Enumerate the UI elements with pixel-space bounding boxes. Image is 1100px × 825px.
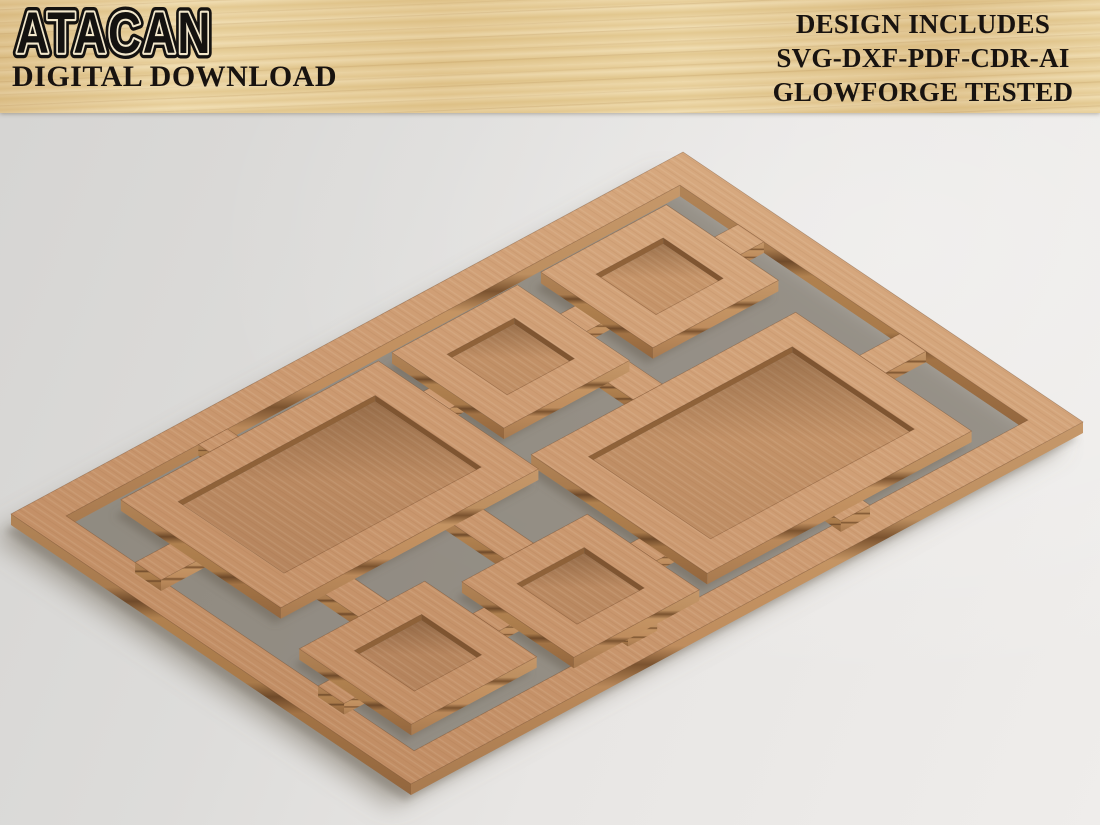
product-render — [0, 0, 1100, 825]
brand-logo: ATACAN ATACAN ATACAN — [10, 4, 310, 64]
design-info-block: DESIGN INCLUDES SVG-DXF-PDF-CDR-AI GLOWF… — [768, 7, 1078, 109]
brand-logo-text-fill: ATACAN — [16, 4, 212, 64]
info-line-file-formats: SVG-DXF-PDF-CDR-AI — [768, 41, 1078, 75]
header-banner: ATACAN ATACAN ATACAN DIGITAL DOWNLOAD DE… — [0, 0, 1100, 113]
info-line-formats-title: DESIGN INCLUDES — [768, 7, 1078, 41]
render-scene-group — [0, 152, 1083, 807]
brand-subtitle: DIGITAL DOWNLOAD — [12, 60, 337, 94]
brand-block: ATACAN ATACAN ATACAN DIGITAL DOWNLOAD — [10, 4, 337, 94]
product-listing-image: ATACAN ATACAN ATACAN DIGITAL DOWNLOAD DE… — [0, 0, 1100, 825]
info-line-glowforge: GLOWFORGE TESTED — [768, 75, 1078, 109]
